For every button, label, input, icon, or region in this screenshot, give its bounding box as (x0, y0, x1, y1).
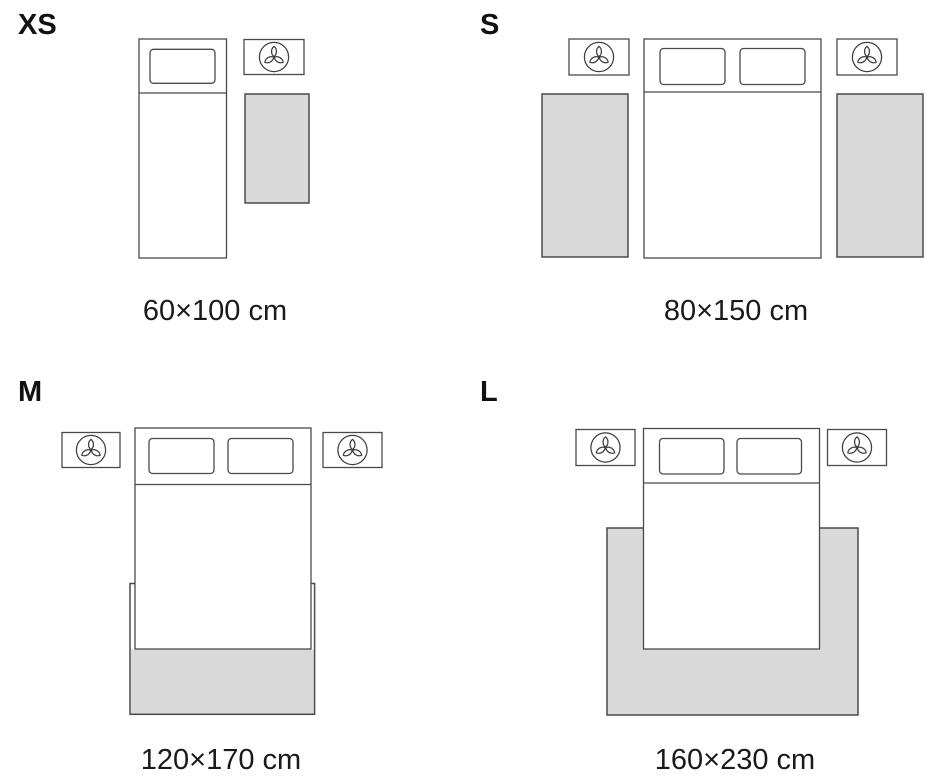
svg-text:S: S (480, 9, 499, 41)
svg-text:160×230 cm: 160×230 cm (655, 744, 815, 776)
svg-text:60×100 cm: 60×100 cm (143, 295, 287, 327)
svg-text:120×170 cm: 120×170 cm (141, 744, 301, 776)
svg-text:XS: XS (18, 9, 57, 41)
svg-text:M: M (18, 376, 42, 408)
svg-text:80×150 cm: 80×150 cm (664, 295, 808, 327)
svg-text:L: L (480, 376, 498, 408)
